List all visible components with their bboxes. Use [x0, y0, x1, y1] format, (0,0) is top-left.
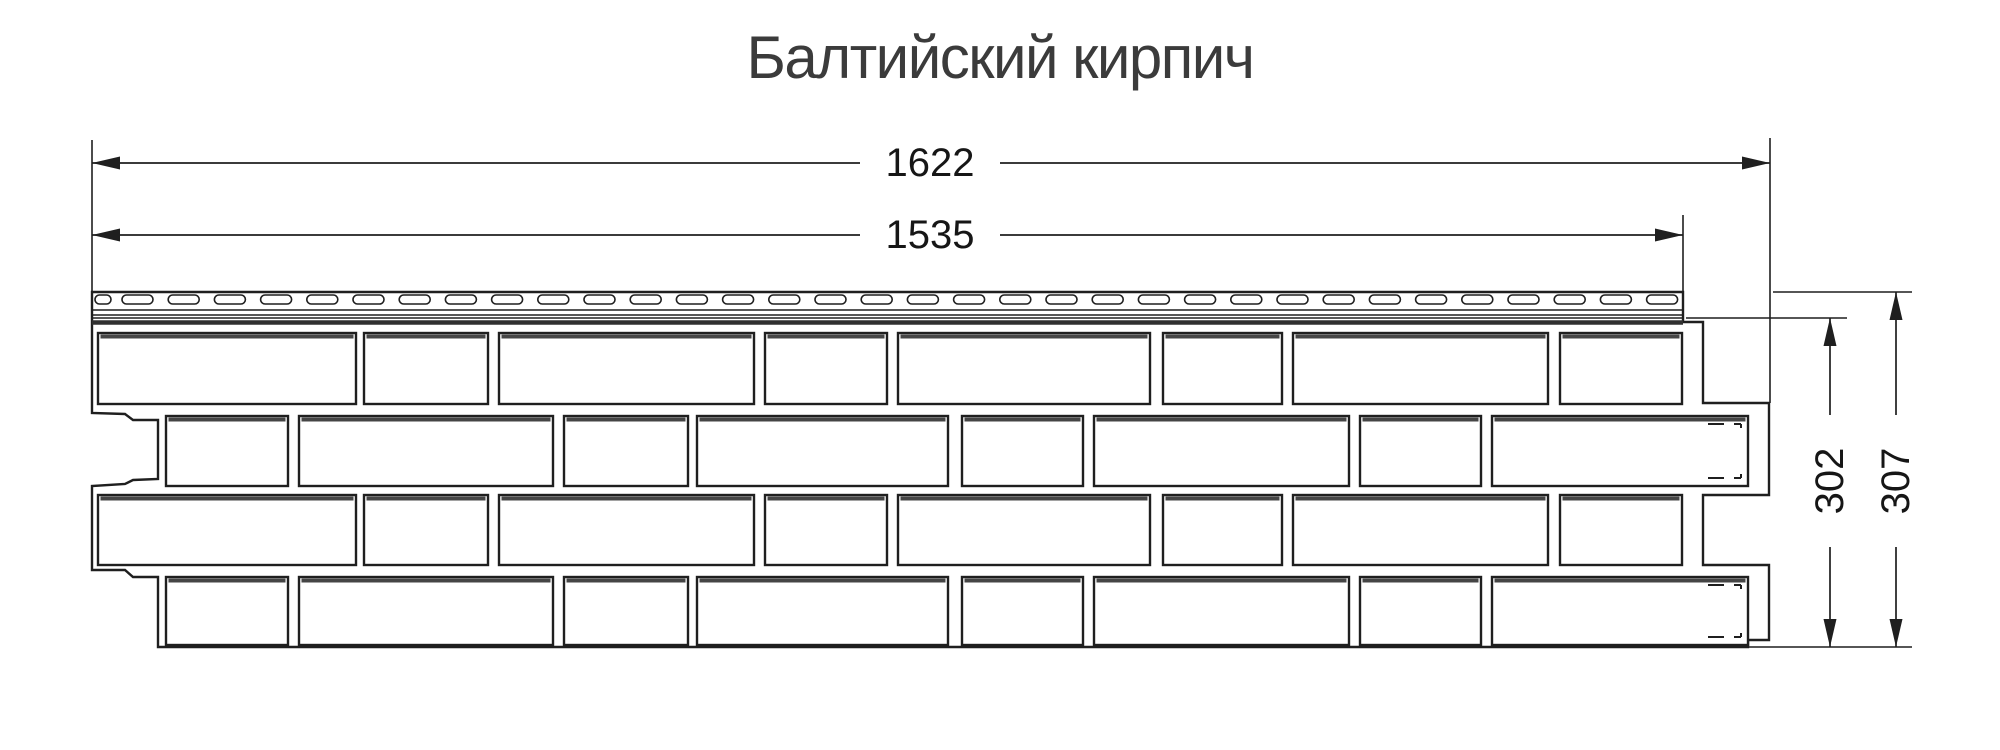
dim-label-full-height: 307	[1873, 415, 1919, 547]
nail-slot	[769, 295, 800, 304]
brick	[564, 577, 688, 645]
dim-label-face-height: 302	[1807, 415, 1853, 547]
nail-slot	[630, 295, 661, 304]
nail-slot	[168, 295, 199, 304]
brick	[898, 333, 1150, 404]
brick	[98, 495, 356, 565]
nail-slot	[1554, 295, 1585, 304]
dimension-arrow	[92, 229, 120, 242]
dimension-arrow	[1824, 619, 1837, 647]
nail-slot	[1416, 295, 1447, 304]
brick	[364, 495, 488, 565]
nail-slot	[445, 295, 476, 304]
dim-label-full-width: 1622	[860, 140, 1000, 186]
nail-slot	[1138, 295, 1169, 304]
nail-slot	[1462, 295, 1493, 304]
brick	[1492, 416, 1748, 486]
dimension-arrow	[1890, 619, 1903, 647]
brick	[1293, 495, 1548, 565]
technical-drawing-canvas: Балтийский кирпич 1622 1535 302 307	[0, 0, 2000, 750]
brick	[499, 333, 754, 404]
nail-slot	[399, 295, 430, 304]
brick	[98, 333, 356, 404]
brick	[962, 416, 1083, 486]
nail-slot	[1323, 295, 1354, 304]
nail-slot	[1600, 295, 1631, 304]
nail-slot	[353, 295, 384, 304]
nail-slot	[538, 295, 569, 304]
brick	[1163, 495, 1282, 565]
brick	[1492, 577, 1748, 645]
nail-slot	[907, 295, 938, 304]
brick	[364, 333, 488, 404]
nail-slot	[1000, 295, 1031, 304]
brick	[962, 577, 1083, 645]
brick	[1094, 577, 1349, 645]
nail-slot	[307, 295, 338, 304]
panel-line-art	[0, 0, 2000, 750]
brick	[765, 495, 887, 565]
brick	[1560, 495, 1682, 565]
dim-label-nail-width: 1535	[860, 212, 1000, 258]
brick	[564, 416, 688, 486]
nail-slot	[1647, 295, 1678, 304]
nail-slot	[723, 295, 754, 304]
nail-slot	[1231, 295, 1262, 304]
brick	[1560, 333, 1682, 404]
nail-slot	[1369, 295, 1400, 304]
brick	[697, 416, 948, 486]
brick	[299, 577, 553, 645]
brick	[1293, 333, 1548, 404]
brick	[898, 495, 1150, 565]
brick	[1360, 577, 1481, 645]
dimension-arrow	[1742, 157, 1770, 170]
brick	[299, 416, 553, 486]
nail-slot	[95, 295, 111, 304]
brick	[1094, 416, 1349, 486]
nail-slot	[261, 295, 292, 304]
nail-slot	[122, 295, 153, 304]
nail-slot	[676, 295, 707, 304]
nail-slot	[1185, 295, 1216, 304]
brick	[499, 495, 754, 565]
nail-slot	[1508, 295, 1539, 304]
brick	[1163, 333, 1282, 404]
nail-slot	[584, 295, 615, 304]
nail-slot	[1277, 295, 1308, 304]
dimension-arrow	[1824, 318, 1837, 346]
dimension-arrow	[1655, 229, 1683, 242]
dimension-arrow	[1890, 292, 1903, 320]
nail-slot	[815, 295, 846, 304]
brick	[166, 577, 288, 645]
brick	[765, 333, 887, 404]
brick	[697, 577, 948, 645]
nail-slot	[1092, 295, 1123, 304]
nail-slot	[1046, 295, 1077, 304]
nail-slot	[214, 295, 245, 304]
dimension-arrow	[92, 157, 120, 170]
brick	[166, 416, 288, 486]
brick	[1360, 416, 1481, 486]
nail-slot	[492, 295, 523, 304]
nail-slot	[861, 295, 892, 304]
nail-slot	[954, 295, 985, 304]
